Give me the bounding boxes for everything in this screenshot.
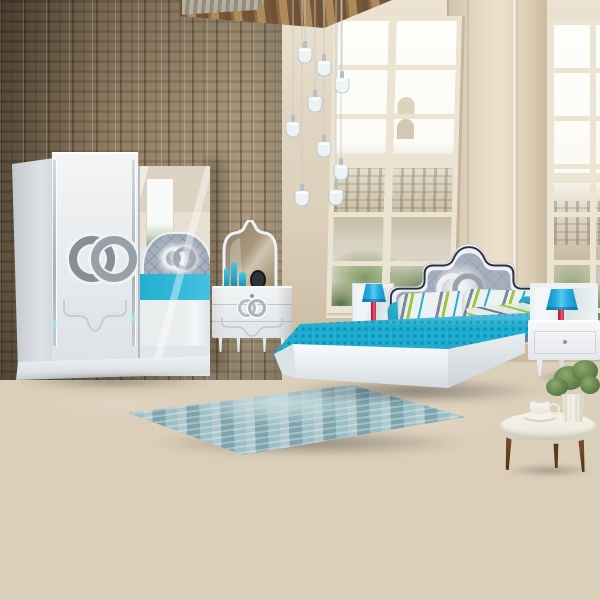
drawer-knob bbox=[563, 340, 567, 344]
sliding-wardrobe bbox=[12, 150, 212, 382]
nightstand-drawer bbox=[534, 331, 596, 354]
plant-foliage bbox=[580, 376, 600, 394]
dresser-chest bbox=[212, 288, 292, 338]
decor-round-frame bbox=[250, 270, 266, 290]
ring-right bbox=[91, 236, 137, 282]
lamp-left-stem bbox=[371, 302, 376, 323]
wardrobe-floor-shadow bbox=[14, 374, 214, 388]
wardrobe-scallop-trim bbox=[61, 300, 129, 334]
decor-vase bbox=[224, 268, 229, 288]
ring-right bbox=[248, 299, 266, 317]
dresser-leg bbox=[218, 338, 223, 352]
bedroom-scene bbox=[0, 0, 600, 600]
wardrobe-mirror-door bbox=[138, 166, 210, 376]
dresser-leg bbox=[262, 338, 267, 352]
wardrobe-rings-emblem bbox=[69, 234, 125, 274]
led-glint bbox=[53, 320, 56, 329]
plant-foliage bbox=[546, 378, 568, 396]
wardrobe-chrome-strip bbox=[53, 160, 56, 346]
plant-pot bbox=[560, 394, 586, 422]
wardrobe-left-door bbox=[52, 152, 138, 376]
mirror-sheen bbox=[140, 166, 210, 376]
decor-vase bbox=[231, 262, 237, 288]
dresser-rings-emblem bbox=[238, 298, 268, 318]
decor-vase bbox=[239, 272, 246, 288]
wardrobe-side-panel bbox=[12, 158, 54, 378]
dresser-leg bbox=[236, 338, 241, 352]
table-floor-shadow bbox=[504, 466, 594, 475]
dresser-scallop-trim bbox=[220, 318, 284, 338]
pendant-cables bbox=[293, 0, 342, 184]
dresser-with-mirror bbox=[210, 220, 294, 354]
teacup-mouth bbox=[532, 398, 548, 403]
pendant-light-cluster bbox=[286, 0, 352, 214]
coffee-table-group bbox=[496, 358, 600, 476]
lamp-left-shade bbox=[362, 284, 386, 302]
nightstand-right-body bbox=[528, 322, 600, 360]
lamp-right-shade bbox=[546, 289, 578, 310]
teacup-handle bbox=[548, 403, 560, 415]
led-glint bbox=[132, 314, 135, 323]
